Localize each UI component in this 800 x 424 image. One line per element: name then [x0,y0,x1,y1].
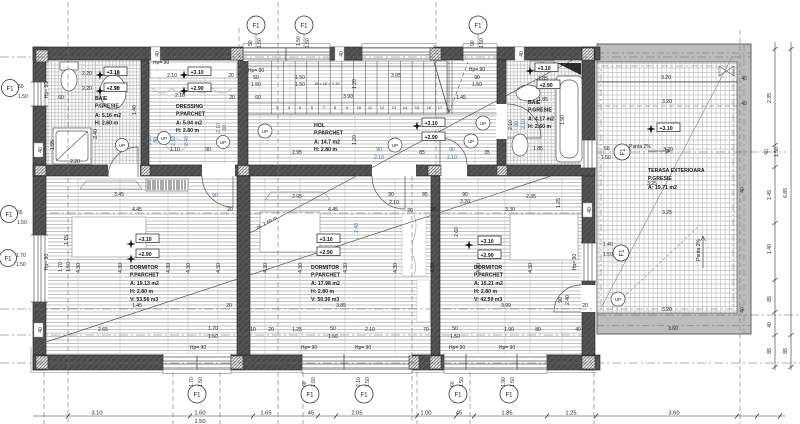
svg-text:2.40: 2.40 [354,223,360,233]
svg-text:H: 2.80 m: H: 2.80 m [176,128,199,134]
svg-text:90: 90 [449,147,455,153]
svg-text:3.10: 3.10 [91,411,102,417]
svg-text:17: 17 [438,105,443,110]
svg-text:1.25: 1.25 [565,411,576,417]
svg-text:40: 40 [741,76,747,82]
svg-text:85: 85 [767,296,773,302]
svg-text:DORMITOR: DORMITOR [311,265,339,271]
svg-text:1.50: 1.50 [198,377,204,387]
svg-text:Hp= 90: Hp= 90 [572,254,578,270]
svg-text:1.50: 1.50 [479,38,485,48]
svg-text:20: 20 [268,327,274,333]
svg-text:1.45: 1.45 [767,190,773,200]
svg-text:10: 10 [250,327,256,333]
svg-text:1.20: 1.20 [352,79,358,89]
svg-text:6.85: 6.85 [783,188,789,198]
svg-text:15: 15 [114,71,120,77]
svg-text:+2.90: +2.90 [481,253,494,259]
svg-text:Hp= 90: Hp= 90 [469,67,485,73]
svg-text:2.10: 2.10 [508,120,514,130]
svg-text:UP: UP [262,129,268,134]
svg-text:F1: F1 [5,213,13,219]
svg-text:4.30: 4.30 [76,263,82,273]
svg-text:40: 40 [741,101,747,107]
svg-text:1.70: 1.70 [208,326,218,332]
svg-text:85: 85 [783,348,789,354]
svg-text:F1: F1 [454,393,462,399]
svg-text:2.10: 2.10 [374,155,384,161]
svg-text:4.30: 4.30 [343,263,349,273]
svg-text:Hp= 90: Hp= 90 [301,345,317,351]
svg-text:4.30: 4.30 [118,263,124,273]
svg-text:3.60: 3.60 [668,326,678,332]
svg-text:1.50: 1.50 [194,419,205,424]
svg-text:1.50: 1.50 [295,82,305,88]
svg-text:60: 60 [450,381,456,387]
svg-text:A: 5.04 m2: A: 5.04 m2 [176,121,202,127]
svg-text:4.30: 4.30 [298,263,304,273]
svg-text:2.60: 2.60 [454,227,460,237]
svg-text:2.40: 2.40 [565,295,571,305]
svg-text:1.20: 1.20 [352,135,358,145]
svg-text:40: 40 [575,327,581,333]
svg-text:BAIE: BAIE [95,96,108,102]
svg-text:2.40: 2.40 [184,136,190,146]
svg-text:Hp= 90: Hp= 90 [190,345,206,351]
svg-text:F1: F1 [4,257,12,263]
svg-text:40: 40 [587,207,593,213]
svg-text:2.95: 2.95 [292,194,302,200]
svg-text:1.50: 1.50 [208,334,218,340]
svg-text:HOL: HOL [314,123,326,129]
svg-text:+3.10: +3.10 [425,121,438,127]
svg-text:65: 65 [17,210,23,216]
svg-text:4.30: 4.30 [430,263,436,273]
svg-text:1.25: 1.25 [292,327,302,333]
svg-text:40: 40 [38,327,44,333]
svg-text:2.95: 2.95 [292,150,302,156]
svg-text:90: 90 [470,40,476,46]
svg-text:2.10: 2.10 [171,136,177,146]
svg-text:Hp= 90: Hp= 90 [449,345,465,351]
svg-text:4.30: 4.30 [476,263,482,273]
svg-text:Hp= 90: Hp= 90 [355,345,371,351]
svg-text:A: 15.21 m2: A: 15.21 m2 [474,281,503,287]
svg-text:2.20: 2.20 [82,71,92,77]
svg-text:UP: UP [161,136,167,141]
svg-text:1.50: 1.50 [774,147,780,157]
svg-text:H: 2.80 m: H: 2.80 m [314,147,337,153]
svg-text:+3.10: +3.10 [139,237,152,243]
svg-text:10: 10 [357,105,362,110]
svg-text:2.35: 2.35 [526,194,536,200]
svg-text:+3.10: +3.10 [320,237,333,243]
svg-text:4.30: 4.30 [216,263,222,273]
svg-text:+3.10: +3.10 [481,239,494,245]
svg-text:2.10: 2.10 [365,327,375,333]
svg-text:40: 40 [764,149,770,155]
svg-text:3.60: 3.60 [668,411,679,417]
svg-text:H: 2.80 m: H: 2.80 m [130,289,153,295]
svg-text:A: 5.16 m2: A: 5.16 m2 [95,113,121,119]
svg-text:1.40: 1.40 [767,244,773,254]
svg-text:+2.90: +2.90 [425,135,438,141]
svg-text:2.40: 2.40 [93,129,99,139]
svg-text:2.35: 2.35 [767,93,773,103]
svg-text:60: 60 [302,381,308,387]
svg-text:85: 85 [767,348,773,354]
svg-text:13: 13 [392,105,397,110]
svg-text:15: 15 [415,105,420,110]
svg-text:80: 80 [535,327,541,333]
svg-text:P.GRESIE: P.GRESIE [528,108,552,114]
svg-text:4.30: 4.30 [263,263,269,273]
svg-text:3.85: 3.85 [336,303,346,309]
svg-text:85: 85 [419,150,425,156]
svg-text:1.50: 1.50 [257,38,263,48]
svg-text:1.50: 1.50 [450,334,460,340]
svg-text:UP: UP [468,139,474,144]
svg-text:20: 20 [227,207,233,213]
svg-text:12: 12 [380,105,385,110]
svg-text:UP: UP [119,143,125,148]
svg-text:60: 60 [255,95,261,101]
svg-text:Panta 2%: Panta 2% [629,144,651,150]
svg-text:F1: F1 [6,87,14,93]
svg-text:15: 15 [114,86,120,92]
svg-text:F1: F1 [505,393,513,399]
svg-text:1.50: 1.50 [17,220,27,226]
svg-text:3.25: 3.25 [647,181,657,187]
svg-text:F1: F1 [306,393,314,399]
svg-text:1.50: 1.50 [16,262,26,268]
svg-text:2.10: 2.10 [356,377,362,387]
svg-text:F1: F1 [252,24,260,30]
svg-text:V: 50.36 m3: V: 50.36 m3 [311,297,339,303]
svg-text:3.20: 3.20 [662,307,672,313]
svg-text:3.20: 3.20 [662,99,672,105]
svg-text:45: 45 [456,411,462,417]
svg-text:+2.90: +2.90 [540,83,553,89]
svg-text:1.40: 1.40 [603,242,613,248]
svg-text:18 x 18 = 3.15: 18 x 18 = 3.15 [314,81,340,86]
svg-text:1.85: 1.85 [533,146,543,152]
svg-text:2.20: 2.20 [460,199,470,205]
svg-text:4.30: 4.30 [393,263,399,273]
svg-text:1.50: 1.50 [18,94,28,100]
svg-text:20: 20 [430,207,436,213]
svg-text:P.PARCHET: P.PARCHET [176,112,206,118]
svg-text:50: 50 [253,75,259,81]
svg-text:UP: UP [480,121,486,126]
svg-text:H: 2.60 m: H: 2.60 m [528,124,551,130]
svg-text:H: 2.60 m: H: 2.60 m [95,121,118,127]
svg-text:TERASA EXTERIOARA: TERASA EXTERIOARA [648,168,705,174]
svg-text:2.20: 2.20 [70,159,80,165]
svg-text:4.30: 4.30 [186,263,192,273]
svg-text:20: 20 [229,95,235,101]
svg-text:90: 90 [205,147,211,153]
svg-text:P.PARCHET: P.PARCHET [130,273,160,279]
svg-text:1.40: 1.40 [132,105,138,115]
svg-text:2.10: 2.10 [521,119,527,129]
svg-text:1.50: 1.50 [601,155,611,161]
svg-text:1.70: 1.70 [189,377,195,387]
svg-text:A: 17.98 m2: A: 17.98 m2 [311,281,340,287]
svg-text:40: 40 [767,322,773,328]
svg-text:H: 2.80 m: H: 2.80 m [474,289,497,295]
svg-text:4.45: 4.45 [328,207,338,213]
svg-text:90: 90 [462,192,468,198]
svg-text:50: 50 [604,146,610,152]
svg-text:Hp= 90: Hp= 90 [248,68,264,74]
svg-text:Hp= 90: Hp= 90 [499,345,515,351]
svg-text:1.50: 1.50 [251,82,261,88]
svg-text:85: 85 [422,192,428,198]
svg-text:1.90: 1.90 [501,377,507,387]
svg-text:50: 50 [452,326,458,332]
svg-text:+2.90: +2.90 [139,252,152,258]
svg-text:90: 90 [376,147,382,153]
svg-text:1.90: 1.90 [504,327,514,333]
svg-text:1.50: 1.50 [66,262,72,272]
svg-text:40: 40 [740,187,746,193]
svg-text:20: 20 [407,208,413,214]
svg-text:V: 42.59 m3: V: 42.59 m3 [474,297,502,303]
svg-text:35: 35 [484,150,490,156]
svg-text:3.90: 3.90 [343,94,353,100]
svg-text:50: 50 [18,84,24,90]
svg-text:Hp= 90: Hp= 90 [44,82,50,98]
svg-text:+3.10: +3.10 [660,126,673,132]
svg-text:+3.10: +3.10 [538,66,551,72]
svg-text:P.PARCHET: P.PARCHET [314,131,344,137]
svg-text:UP: UP [392,143,398,148]
svg-text:UP: UP [615,297,621,302]
svg-text:A: 14.7 m2: A: 14.7 m2 [314,140,340,146]
svg-text:1.60: 1.60 [194,411,205,417]
svg-text:1.70: 1.70 [16,253,26,259]
svg-text:2.10: 2.10 [167,73,177,79]
svg-text:H: 2.80 m: H: 2.80 m [311,289,334,295]
svg-text:1.50: 1.50 [296,36,302,46]
svg-text:3.25: 3.25 [662,210,672,216]
svg-text:60: 60 [58,95,64,101]
svg-text:F1: F1 [620,249,626,257]
svg-text:1.70: 1.70 [58,262,64,272]
svg-text:1.55: 1.55 [50,140,56,150]
svg-text:50: 50 [330,326,336,332]
svg-text:40: 40 [519,51,525,57]
svg-text:1.00: 1.00 [420,411,431,417]
svg-text:F1: F1 [621,148,627,156]
svg-text:4.30: 4.30 [166,263,172,273]
svg-text:2.10: 2.10 [447,155,457,161]
svg-text:UP: UP [220,140,226,145]
svg-text:3.45: 3.45 [114,192,124,198]
svg-text:1.50: 1.50 [305,38,311,48]
svg-text:3.30: 3.30 [505,207,515,213]
svg-text:1.50: 1.50 [603,252,613,258]
svg-text:90: 90 [388,192,394,198]
svg-text:1.50: 1.50 [311,377,317,387]
svg-text:2.05: 2.05 [351,411,362,417]
svg-text:80: 80 [222,125,228,131]
svg-text:Hp= 90: Hp= 90 [44,254,50,270]
svg-text:+2.90: +2.90 [191,86,204,92]
svg-text:50: 50 [248,40,254,46]
svg-text:1.65: 1.65 [260,411,271,417]
svg-text:40: 40 [155,51,161,57]
svg-text:3.20: 3.20 [661,75,671,81]
svg-text:1.50: 1.50 [472,82,482,88]
svg-text:P.GRESIE: P.GRESIE [95,104,119,110]
svg-text:Panta 2%: Panta 2% [696,239,702,261]
svg-text:2.65: 2.65 [98,327,108,333]
svg-text:1.50: 1.50 [365,377,371,387]
svg-text:40: 40 [740,307,746,313]
svg-text:1.90: 1.90 [560,115,566,125]
svg-text:90: 90 [514,121,520,127]
svg-text:F1: F1 [360,393,368,399]
svg-text:+2.90: +2.90 [320,250,333,256]
svg-text:70: 70 [423,327,429,333]
svg-text:90: 90 [558,297,564,303]
svg-text:F1: F1 [300,24,308,30]
svg-text:1.85: 1.85 [501,411,512,417]
svg-text:1.85: 1.85 [538,97,548,103]
svg-text:1.25: 1.25 [556,198,562,208]
svg-text:DORMITOR: DORMITOR [130,265,158,271]
svg-text:F1: F1 [193,393,201,399]
svg-text:2.10: 2.10 [175,93,185,99]
svg-text:3.05: 3.05 [391,73,401,79]
svg-text:1.15: 1.15 [64,235,70,245]
svg-text:20: 20 [228,73,234,79]
svg-text:40: 40 [339,51,345,57]
svg-text:1.10: 1.10 [170,147,180,153]
svg-text:20: 20 [226,303,232,309]
svg-text:1.50: 1.50 [459,377,465,387]
svg-text:+3.10: +3.10 [191,70,204,76]
svg-text:1.50: 1.50 [510,377,516,387]
svg-text:3.99: 3.99 [501,303,511,309]
svg-text:45: 45 [308,411,314,417]
svg-text:1.50: 1.50 [328,334,338,340]
svg-text:A: 4.17 m2: A: 4.17 m2 [528,117,554,123]
svg-text:4.30: 4.30 [528,263,534,273]
svg-text:1.45: 1.45 [132,303,142,309]
svg-text:A: 19.13 m2: A: 19.13 m2 [130,281,159,287]
svg-text:2.20: 2.20 [82,86,92,92]
svg-text:40: 40 [38,147,44,153]
svg-text:4.45: 4.45 [132,207,142,213]
svg-text:F1: F1 [474,24,482,30]
svg-text:16: 16 [427,105,432,110]
svg-text:1.50: 1.50 [295,75,305,81]
svg-text:90: 90 [474,75,480,81]
svg-text:P.PARCHET: P.PARCHET [311,273,341,279]
svg-text:2.10: 2.10 [389,200,399,206]
svg-text:14: 14 [403,105,408,110]
svg-text:90: 90 [212,193,218,199]
svg-text:DRESSING: DRESSING [176,104,203,110]
svg-text:1.45: 1.45 [456,95,466,101]
svg-text:20: 20 [582,303,588,309]
